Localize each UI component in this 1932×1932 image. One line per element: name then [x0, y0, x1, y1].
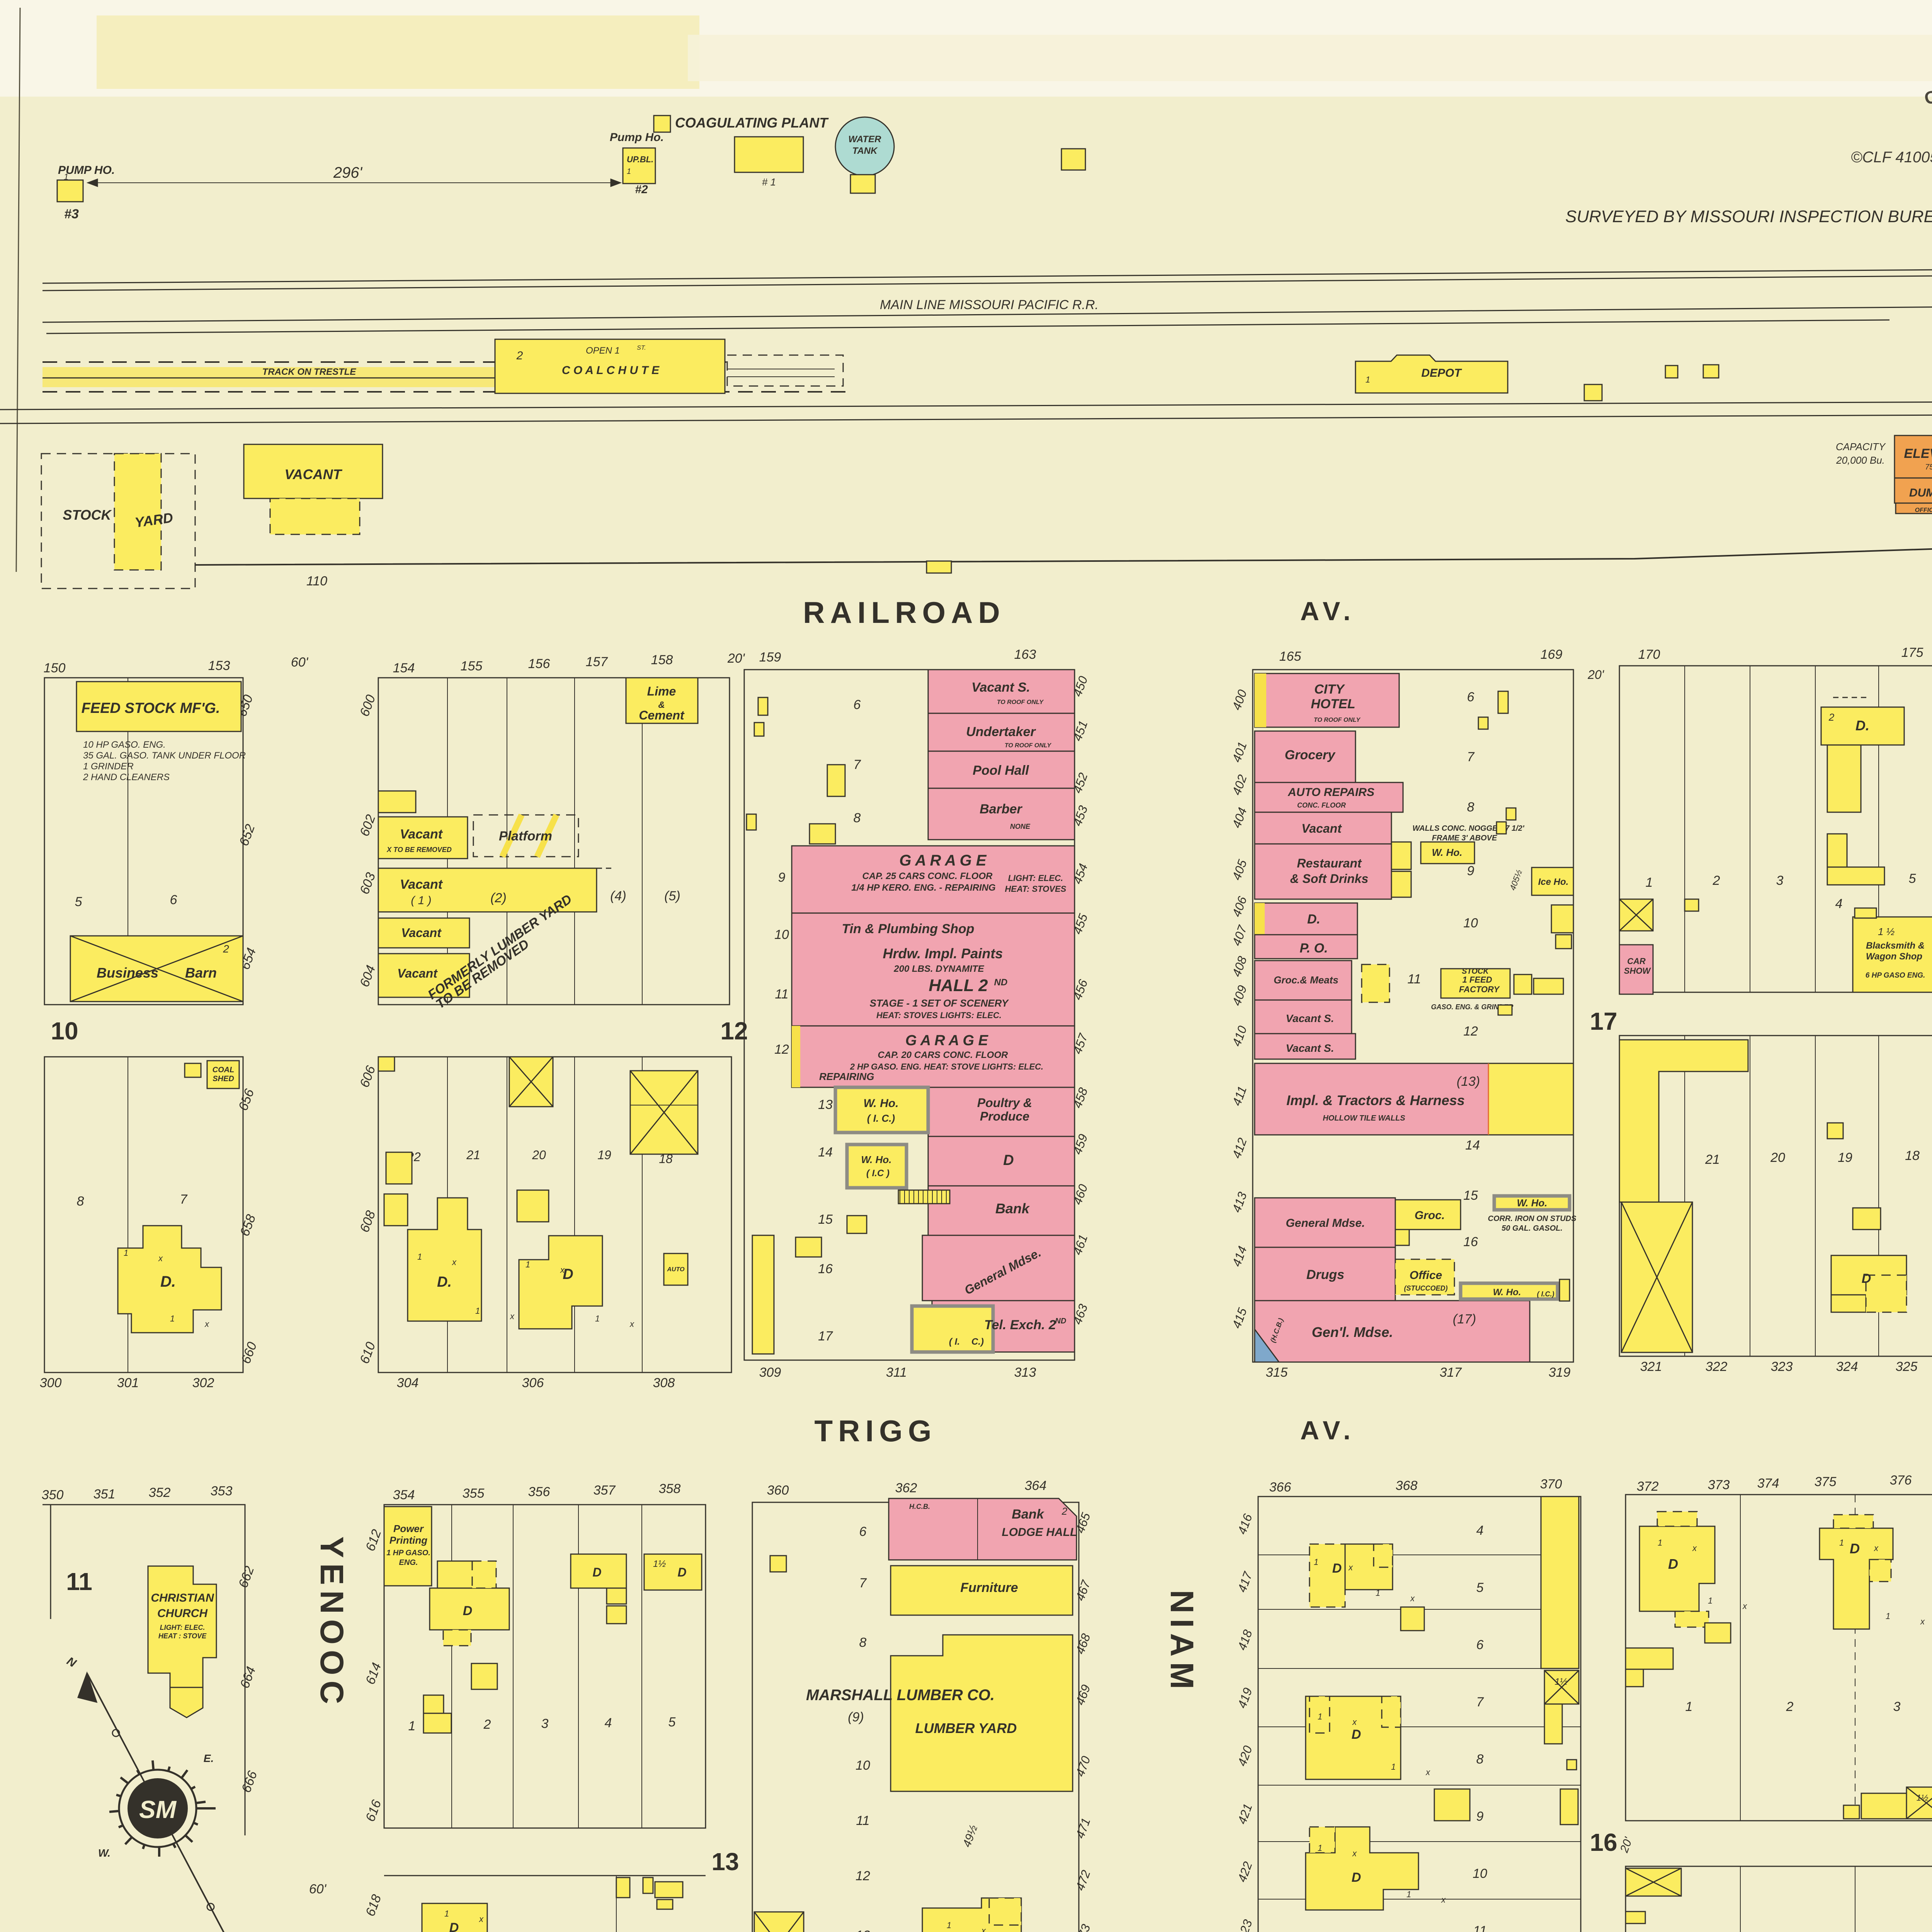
svg-text:1: 1: [1318, 1712, 1322, 1721]
svg-text:X TO BE REMOVED: X TO BE REMOVED: [386, 846, 452, 854]
svg-text:2 HAND CLEANERS: 2 HAND CLEANERS: [83, 772, 170, 782]
svg-text:1: 1: [1406, 1889, 1411, 1899]
svg-text:Vacant: Vacant: [401, 926, 442, 940]
svg-text:MARSHALL LUMBER CO.: MARSHALL LUMBER CO.: [806, 1687, 995, 1704]
svg-text:x: x: [1352, 1717, 1357, 1727]
svg-text:6 HP GASO ENG.: 6 HP GASO ENG.: [1866, 971, 1925, 980]
svg-text:CITY: CITY: [1314, 682, 1345, 697]
svg-text:x: x: [452, 1257, 457, 1267]
svg-text:9: 9: [778, 870, 786, 885]
svg-text:Undertaker: Undertaker: [966, 724, 1036, 739]
svg-text:x: x: [1874, 1543, 1879, 1553]
svg-text:Platform: Platform: [499, 829, 552, 844]
svg-text:302: 302: [192, 1376, 214, 1390]
svg-text:AUTO: AUTO: [667, 1266, 685, 1273]
svg-text:155: 155: [461, 659, 483, 673]
svg-text:1: 1: [1646, 875, 1653, 890]
svg-text:x: x: [1352, 1849, 1357, 1858]
svg-text:Vacant S.: Vacant S.: [1286, 1012, 1334, 1024]
svg-text:20: 20: [532, 1148, 546, 1162]
svg-text:376: 376: [1890, 1473, 1912, 1488]
svg-text:D.: D.: [1307, 912, 1320, 927]
svg-text:14: 14: [1465, 1138, 1480, 1153]
svg-text:SURVEYED BY MISSOURI INSPECTIO: SURVEYED BY MISSOURI INSPECTION BUREAU: [1565, 207, 1932, 226]
svg-text:311: 311: [886, 1365, 907, 1380]
svg-text:HEAT: STOVES: HEAT: STOVES: [1005, 884, 1066, 894]
svg-text:21: 21: [1705, 1152, 1720, 1167]
svg-text:ND: ND: [1055, 1317, 1066, 1325]
svg-text:FRAME 3' ABOVE: FRAME 3' ABOVE: [1432, 834, 1497, 842]
svg-text:SM: SM: [139, 1796, 177, 1823]
svg-text:(STUCCOED): (STUCCOED): [1404, 1284, 1448, 1292]
svg-text:360: 360: [767, 1483, 789, 1498]
svg-text:306: 306: [522, 1376, 544, 1390]
svg-text:Vacant S.: Vacant S.: [971, 680, 1030, 695]
svg-text:7: 7: [1467, 750, 1475, 764]
svg-text:YENOOC: YENOOC: [314, 1536, 350, 1709]
svg-text:10: 10: [774, 927, 789, 942]
svg-text:x: x: [479, 1914, 484, 1924]
svg-text:D: D: [1850, 1541, 1860, 1556]
svg-text:Blacksmith &: Blacksmith &: [1866, 940, 1925, 951]
svg-text:8: 8: [859, 1635, 867, 1650]
svg-text:7: 7: [859, 1576, 867, 1590]
svg-text:3: 3: [1776, 873, 1784, 888]
svg-text:16: 16: [1463, 1235, 1478, 1249]
svg-text:317: 317: [1440, 1365, 1462, 1380]
svg-text:( I. C.): ( I. C.): [867, 1112, 895, 1124]
svg-text:1: 1: [1314, 1557, 1318, 1567]
svg-text:W. Ho.: W. Ho.: [863, 1097, 898, 1110]
svg-text:FACTORY: FACTORY: [1459, 985, 1500, 994]
svg-text:Ice Ho.: Ice Ho.: [1538, 877, 1569, 887]
svg-text:7: 7: [854, 757, 861, 772]
svg-text:6: 6: [1467, 690, 1475, 704]
svg-text:TO ROOF ONLY: TO ROOF ONLY: [997, 699, 1044, 706]
svg-text:WALLS CONC. NOGGED 7 1/2': WALLS CONC. NOGGED 7 1/2': [1412, 824, 1524, 833]
svg-text:REPAIRING: REPAIRING: [819, 1071, 874, 1082]
svg-text:Cement: Cement: [639, 708, 685, 722]
svg-text:175: 175: [1901, 645, 1923, 660]
svg-text:12: 12: [774, 1042, 789, 1057]
svg-text:Poultry &: Poultry &: [977, 1096, 1032, 1110]
svg-text:324: 324: [1836, 1359, 1858, 1374]
svg-text:3: 3: [1893, 1699, 1901, 1714]
svg-text:374: 374: [1757, 1476, 1779, 1491]
svg-text:Business: Business: [97, 965, 158, 981]
svg-text:10 HP GASO. ENG.: 10 HP GASO. ENG.: [83, 740, 166, 750]
svg-text:8: 8: [1467, 800, 1475, 815]
svg-text:D: D: [1668, 1556, 1678, 1572]
svg-text:1: 1: [1839, 1538, 1844, 1548]
svg-text:309: 309: [759, 1365, 781, 1380]
svg-text:350: 350: [42, 1488, 64, 1502]
svg-text:170: 170: [1638, 647, 1660, 662]
svg-text:Restaurant: Restaurant: [1297, 856, 1362, 870]
svg-text:COAL: COAL: [213, 1066, 235, 1074]
svg-text:1: 1: [1708, 1596, 1713, 1605]
svg-text:RAILROAD: RAILROAD: [803, 595, 1005, 629]
svg-text:358: 358: [659, 1481, 681, 1496]
svg-text:156: 156: [528, 656, 550, 671]
svg-text:9: 9: [1467, 864, 1475, 878]
svg-text:301: 301: [117, 1376, 139, 1390]
svg-text:( 1 ): ( 1 ): [411, 894, 431, 907]
svg-text:Pump Ho.: Pump Ho.: [610, 131, 664, 144]
svg-text:Wagon Shop: Wagon Shop: [1866, 951, 1922, 962]
svg-text:300: 300: [40, 1376, 62, 1390]
svg-text:MAIN LINE MISSOURI: MAIN LINE MISSOURI PACIFIC R.R.: [880, 298, 1099, 312]
svg-text:355: 355: [463, 1486, 485, 1501]
svg-text:35 GAL. GASO. TANK UNDER FLOOR: 35 GAL. GASO. TANK UNDER FLOOR: [83, 750, 246, 761]
svg-text:Furniture: Furniture: [960, 1580, 1018, 1595]
svg-text:D.: D.: [1855, 718, 1869, 733]
svg-text:14: 14: [818, 1145, 833, 1160]
svg-text:20,000 Bu.: 20,000 Bu.: [1836, 454, 1885, 466]
svg-text:CAP. 20 CARS CONC. FLOOR: CAP. 20 CARS CONC. FLOOR: [878, 1050, 1009, 1060]
svg-text:D: D: [1332, 1561, 1342, 1576]
svg-text:19: 19: [1838, 1150, 1852, 1165]
svg-text:P. O.: P. O.: [1299, 941, 1328, 956]
svg-text:ENG.: ENG.: [399, 1558, 418, 1567]
svg-text:75': 75': [1925, 463, 1932, 471]
svg-text:1: 1: [1318, 1843, 1322, 1853]
svg-text:15: 15: [1463, 1188, 1478, 1203]
svg-text:313: 313: [1014, 1365, 1036, 1380]
svg-text:1: 1: [1366, 375, 1370, 384]
svg-text:Groc.& Meats: Groc.& Meats: [1274, 974, 1338, 986]
svg-text:60': 60': [309, 1882, 327, 1896]
svg-text:x: x: [1425, 1767, 1430, 1777]
svg-text:& Soft Drinks: & Soft Drinks: [1290, 872, 1369, 886]
svg-text:362: 362: [895, 1481, 917, 1495]
svg-text:1: 1: [627, 167, 631, 176]
svg-text:x: x: [981, 1926, 986, 1932]
svg-text:354: 354: [393, 1488, 415, 1502]
svg-text:HALL 2: HALL 2: [929, 976, 988, 995]
svg-text:Grocery: Grocery: [1285, 748, 1336, 762]
svg-text:x: x: [1920, 1617, 1925, 1626]
svg-text:352: 352: [149, 1485, 171, 1500]
svg-text:5: 5: [1476, 1580, 1484, 1595]
svg-text:20: 20: [1770, 1150, 1785, 1165]
svg-text:159: 159: [759, 650, 781, 665]
svg-text:13: 13: [855, 1928, 870, 1932]
svg-text:OFFICE: OFFICE: [1915, 507, 1932, 514]
svg-text:11: 11: [1407, 972, 1421, 986]
svg-text:x: x: [1441, 1895, 1446, 1905]
svg-text:ND: ND: [994, 977, 1008, 988]
svg-text:Bank: Bank: [1012, 1507, 1044, 1522]
svg-text:1: 1: [1658, 1538, 1662, 1548]
svg-text:21: 21: [466, 1148, 480, 1162]
svg-text:50 GAL. GASOL.: 50 GAL. GASOL.: [1502, 1224, 1563, 1233]
svg-text:4: 4: [1476, 1523, 1484, 1538]
svg-text:6: 6: [859, 1524, 867, 1539]
svg-text:2: 2: [1786, 1699, 1794, 1714]
svg-text:(4): (4): [610, 889, 626, 903]
svg-text:CHRISTIAN: CHRISTIAN: [151, 1592, 214, 1604]
svg-text:18: 18: [1905, 1148, 1920, 1163]
svg-text:6: 6: [170, 893, 177, 907]
svg-text:296': 296': [333, 164, 363, 181]
svg-text:TO ROOF ONLY: TO ROOF ONLY: [1005, 742, 1052, 749]
svg-text:200 LBS. DYNAMITE: 200 LBS. DYNAMITE: [893, 964, 984, 974]
svg-text:C O A L C H U T E: C O A L C H U T E: [562, 364, 660, 377]
svg-text:1: 1: [526, 1260, 530, 1269]
svg-text:1: 1: [1886, 1611, 1890, 1621]
svg-text:2: 2: [516, 349, 523, 362]
svg-text:D: D: [1862, 1271, 1871, 1286]
svg-text:E.: E.: [204, 1752, 214, 1764]
svg-text:HEAT : STOVE: HEAT : STOVE: [158, 1632, 207, 1640]
svg-text:315: 315: [1266, 1365, 1288, 1380]
svg-text:( I.C ): ( I.C ): [866, 1168, 889, 1179]
svg-text:351: 351: [94, 1487, 116, 1502]
svg-text:1: 1: [1376, 1588, 1380, 1598]
svg-text:1: 1: [170, 1314, 175, 1323]
svg-text:4: 4: [605, 1716, 612, 1730]
svg-text:CAR: CAR: [1627, 956, 1646, 966]
svg-text:x: x: [1348, 1563, 1353, 1572]
svg-text:CHURCH: CHURCH: [157, 1607, 208, 1620]
svg-text:LIGHT: ELEC.: LIGHT: ELEC.: [160, 1624, 205, 1631]
svg-text:ELEV.: ELEV.: [1904, 446, 1932, 461]
svg-text:Office: Office: [1410, 1269, 1442, 1282]
svg-text:W.: W.: [98, 1847, 111, 1859]
svg-text:15: 15: [818, 1212, 833, 1227]
svg-text:G A R A G E: G A R A G E: [899, 852, 987, 869]
svg-text:NIAM: NIAM: [1164, 1590, 1200, 1695]
svg-text:x: x: [510, 1311, 515, 1321]
svg-text:x: x: [1742, 1601, 1747, 1611]
svg-text:D: D: [592, 1565, 601, 1579]
svg-text:13: 13: [818, 1097, 833, 1112]
svg-text:VACANT: VACANT: [284, 466, 342, 482]
svg-text:HOLLOW TILE WALLS: HOLLOW TILE WALLS: [1323, 1114, 1405, 1122]
svg-text:11: 11: [775, 987, 788, 1002]
svg-text:2: 2: [483, 1717, 491, 1732]
svg-text:D: D: [1003, 1152, 1014, 1168]
svg-text:D.: D.: [437, 1274, 452, 1290]
svg-text:5: 5: [668, 1715, 676, 1730]
svg-text:169: 169: [1541, 647, 1563, 662]
svg-text:D: D: [449, 1920, 459, 1932]
svg-text:7: 7: [180, 1192, 188, 1207]
svg-text:1½: 1½: [1917, 1793, 1929, 1803]
svg-text:SHOW: SHOW: [1624, 966, 1651, 976]
svg-text:322: 322: [1706, 1359, 1728, 1374]
svg-text:( I.C.): ( I.C.): [1537, 1290, 1554, 1298]
svg-text:x: x: [629, 1319, 634, 1329]
svg-text:OPEN 1: OPEN 1: [586, 345, 620, 356]
svg-text:150: 150: [44, 661, 66, 675]
svg-text:NONE: NONE: [1010, 823, 1031, 830]
svg-text:323: 323: [1771, 1359, 1793, 1374]
svg-text:20': 20': [1587, 668, 1605, 682]
svg-text:319: 319: [1549, 1365, 1571, 1380]
svg-text:1: 1: [1685, 1699, 1693, 1714]
svg-text:16: 16: [818, 1262, 833, 1276]
svg-text:153: 153: [208, 658, 230, 673]
svg-text:Groc.: Groc.: [1415, 1209, 1445, 1222]
svg-text:60': 60': [291, 655, 309, 670]
svg-text:TRIGG: TRIGG: [815, 1414, 937, 1448]
svg-text:110: 110: [306, 574, 327, 588]
svg-text:9: 9: [1476, 1809, 1484, 1824]
svg-text:1 GRINDER: 1 GRINDER: [83, 761, 134, 772]
svg-text:1½: 1½: [1554, 1677, 1567, 1687]
svg-text:373: 373: [1708, 1478, 1730, 1492]
svg-text:D: D: [1352, 1727, 1361, 1742]
svg-text:11: 11: [66, 1568, 92, 1595]
svg-text:308: 308: [653, 1376, 675, 1390]
svg-text:1: 1: [408, 1719, 416, 1733]
svg-text:1 HP GASO.: 1 HP GASO.: [386, 1549, 430, 1557]
svg-text:13: 13: [711, 1848, 739, 1876]
svg-text:UP.BL.: UP.BL.: [627, 155, 653, 164]
svg-text:6: 6: [854, 697, 861, 712]
svg-text:General Mdse.: General Mdse.: [1286, 1217, 1365, 1230]
svg-text:©CLF 41005: ©CLF 41005: [1851, 149, 1932, 166]
svg-text:Produce: Produce: [980, 1109, 1029, 1123]
svg-text:WATER: WATER: [849, 134, 882, 145]
svg-text:CONC. FLOOR: CONC. FLOOR: [1297, 801, 1346, 809]
svg-text:2: 2: [1713, 873, 1720, 888]
svg-text:W. Ho.: W. Ho.: [1493, 1287, 1521, 1298]
svg-text:LODGE HALL: LODGE HALL: [1002, 1526, 1077, 1539]
svg-text:(5): (5): [664, 889, 680, 903]
svg-text:1: 1: [1391, 1762, 1396, 1772]
svg-text:W. Ho.: W. Ho.: [861, 1154, 892, 1165]
svg-text:2 HP GASO. ENG. HEAT: STOVE: 2 HP GASO. ENG. HEAT: STOVE LIGHTS: ELEC…: [850, 1062, 1043, 1071]
svg-text:17: 17: [818, 1329, 833, 1344]
svg-text:Vacant: Vacant: [397, 966, 438, 980]
svg-text:Tel. Exch. 2: Tel. Exch. 2: [984, 1318, 1056, 1332]
svg-text:TRACK ON TRESTLE: TRACK ON TRESTLE: [262, 367, 357, 377]
svg-text:STOCK: STOCK: [1462, 967, 1489, 976]
svg-text:Impl. & Tractors & Harness: Impl. & Tractors & Harness: [1286, 1092, 1465, 1108]
svg-text:1: 1: [947, 1920, 951, 1930]
svg-text:154: 154: [393, 661, 415, 675]
svg-text:1: 1: [124, 1248, 128, 1258]
svg-text:12: 12: [1463, 1024, 1478, 1039]
svg-text:11: 11: [1473, 1923, 1486, 1932]
svg-text:G A R A G E: G A R A G E: [905, 1032, 989, 1049]
svg-text:LUMBER YARD: LUMBER YARD: [915, 1720, 1017, 1736]
svg-text:AUTO REPAIRS: AUTO REPAIRS: [1287, 786, 1374, 799]
svg-text:356: 356: [528, 1485, 550, 1499]
svg-text:19: 19: [597, 1148, 611, 1162]
svg-text:10: 10: [1463, 916, 1478, 930]
svg-text:Vacant: Vacant: [400, 827, 443, 842]
svg-text:11: 11: [856, 1813, 869, 1828]
svg-text:16: 16: [1590, 1828, 1617, 1856]
svg-text:4: 4: [1835, 896, 1843, 911]
svg-text:DEPOT: DEPOT: [1421, 367, 1462, 379]
svg-text:158: 158: [651, 653, 673, 667]
svg-text:353: 353: [211, 1484, 233, 1498]
svg-text:Vacant: Vacant: [400, 877, 443, 892]
svg-text:1: 1: [64, 172, 68, 182]
svg-text:364: 364: [1025, 1478, 1047, 1493]
svg-text:D.: D.: [160, 1273, 176, 1290]
svg-text:W. Ho.: W. Ho.: [1517, 1197, 1548, 1209]
svg-text:x: x: [1410, 1594, 1415, 1603]
svg-text:368: 368: [1396, 1478, 1418, 1493]
svg-text:357: 357: [594, 1483, 616, 1498]
svg-text:W. Ho.: W. Ho.: [1432, 847, 1463, 858]
svg-text:Hrdw. Impl. Paints: Hrdw. Impl. Paints: [883, 946, 1003, 961]
svg-text:1 FEED: 1 FEED: [1462, 975, 1492, 985]
svg-text:STOCK: STOCK: [63, 507, 112, 523]
svg-text:2: 2: [223, 943, 229, 955]
svg-text:2: 2: [1828, 711, 1835, 723]
svg-text:LIGHT: ELEC.: LIGHT: ELEC.: [1008, 873, 1063, 883]
svg-text:10: 10: [855, 1758, 870, 1773]
svg-text:Printing: Printing: [389, 1534, 427, 1546]
svg-text:157: 157: [586, 655, 608, 669]
svg-text:(9): (9): [848, 1710, 864, 1725]
svg-text:8: 8: [77, 1194, 84, 1209]
svg-text:Lime: Lime: [647, 684, 676, 698]
svg-text:3: 3: [541, 1716, 549, 1731]
svg-text:(13): (13): [1457, 1074, 1480, 1089]
svg-text:1/4 HP KERO. ENG. - REPAIRIN: 1/4 HP KERO. ENG. - REPAIRING: [851, 883, 995, 893]
svg-text:Drugs: Drugs: [1306, 1267, 1344, 1282]
svg-text:TANK: TANK: [852, 146, 878, 156]
svg-text:5: 5: [1909, 871, 1916, 886]
svg-text:DUMP: DUMP: [1909, 486, 1932, 499]
svg-text:5: 5: [75, 895, 82, 909]
svg-text:Pool Hall: Pool Hall: [973, 763, 1029, 778]
svg-text:6: 6: [1476, 1638, 1484, 1652]
svg-text:AV.: AV.: [1300, 1416, 1356, 1445]
svg-text:1: 1: [444, 1909, 449, 1918]
svg-text:D: D: [1352, 1870, 1361, 1885]
svg-text:HOTEL: HOTEL: [1311, 697, 1355, 711]
svg-text:8: 8: [1476, 1752, 1484, 1767]
svg-text:366: 366: [1269, 1480, 1291, 1495]
svg-text:x: x: [1692, 1543, 1697, 1553]
svg-text:163: 163: [1014, 647, 1036, 662]
svg-text:# 1: # 1: [762, 176, 776, 188]
svg-text:12: 12: [855, 1869, 870, 1883]
svg-text:8: 8: [854, 811, 861, 825]
svg-text:x: x: [560, 1265, 565, 1275]
svg-text:Barn: Barn: [185, 965, 217, 981]
svg-text:10: 10: [1473, 1866, 1487, 1881]
svg-text:1: 1: [595, 1314, 600, 1323]
svg-text:2: 2: [1061, 1505, 1068, 1517]
svg-text:Tin & Plumbing Shop: Tin & Plumbing Shop: [842, 922, 974, 936]
svg-text:COAGULATING PLANT: COAGULATING PLANT: [675, 115, 829, 131]
svg-text:Barber: Barber: [980, 802, 1022, 816]
svg-text:CAPACITY: CAPACITY: [1836, 441, 1886, 452]
svg-text:325: 325: [1896, 1359, 1918, 1374]
svg-text:370: 370: [1540, 1477, 1562, 1492]
svg-text:(17): (17): [1453, 1312, 1476, 1327]
svg-text:321: 321: [1640, 1359, 1662, 1374]
svg-text:AV.: AV.: [1300, 597, 1356, 626]
svg-text:17: 17: [1590, 1007, 1617, 1035]
svg-text:304: 304: [397, 1376, 419, 1390]
svg-text:1: 1: [417, 1252, 422, 1262]
svg-text:Bank: Bank: [995, 1201, 1030, 1216]
svg-text:D: D: [463, 1604, 473, 1618]
svg-text:1½: 1½: [653, 1559, 666, 1569]
svg-text:Gen'l. Mdse.: Gen'l. Mdse.: [1312, 1324, 1393, 1340]
